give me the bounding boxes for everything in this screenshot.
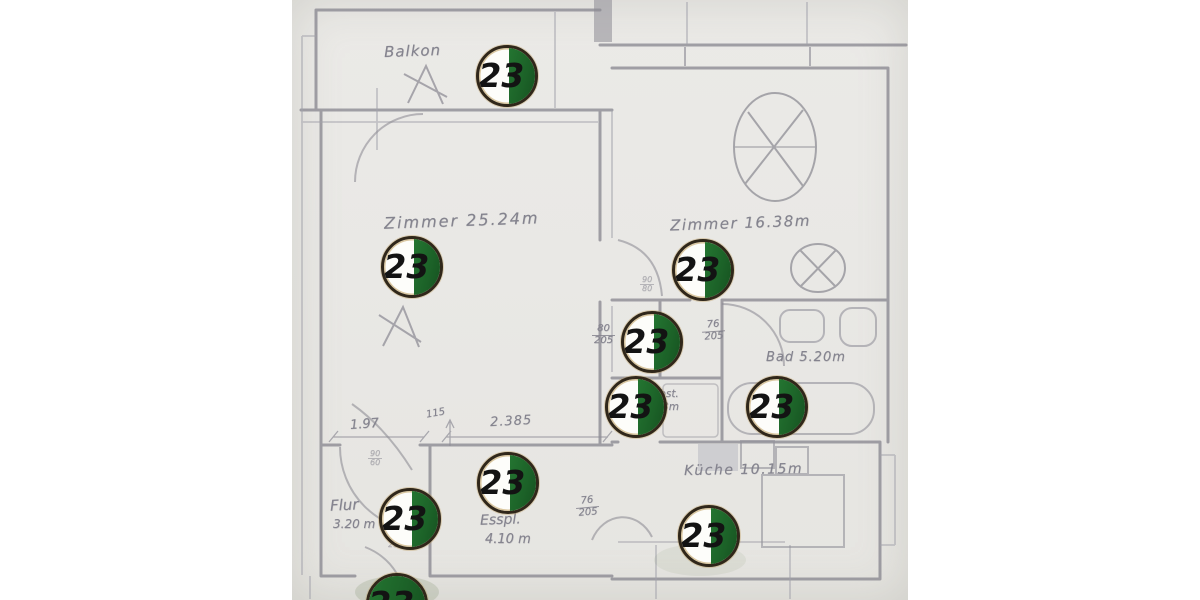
room-label-essplatz: Esspl.: [480, 511, 521, 528]
dim-tiny-corridor: 90 80: [640, 276, 654, 294]
dim-opening-esspl: 2.385: [490, 413, 533, 430]
map-marker[interactable]: 23: [672, 239, 734, 301]
marker-number: 23: [370, 579, 413, 600]
marker-number: 23: [385, 242, 428, 290]
room-area-essplatz: 4.10 m: [485, 532, 531, 547]
floorplan-screenshot: Balkon Zimmer 25.24m Zimmer 16.38m Bad 5…: [0, 0, 1200, 600]
map-marker[interactable]: 23: [746, 376, 808, 438]
marker-number: 23: [481, 458, 524, 506]
room-area-flur: 3.20 m: [333, 517, 375, 531]
wall-column: [594, 0, 612, 42]
marker-number: 23: [625, 317, 668, 365]
map-marker[interactable]: 23: [476, 45, 538, 107]
dim-door-kueche: 76 205: [575, 495, 600, 519]
dim-door-bad: 76 205: [701, 319, 726, 343]
floorplan-linework: [0, 0, 1200, 600]
marker-number: 23: [609, 382, 652, 430]
room-label-balkon: Balkon: [384, 41, 442, 61]
dim-opening-flur: 1.97: [350, 416, 380, 433]
map-marker[interactable]: 23: [621, 311, 683, 373]
dim-door-corridor-width: 80: [597, 324, 610, 335]
map-marker[interactable]: 23: [678, 505, 740, 567]
map-marker[interactable]: 23: [477, 452, 539, 514]
map-marker[interactable]: 23: [379, 488, 441, 550]
dim-door-kueche-height: 205: [576, 505, 600, 518]
dim-tiny-flur: 90 60: [368, 450, 382, 468]
dim-door-corridor-height: 205: [592, 335, 615, 347]
marker-number: 23: [676, 245, 719, 293]
dim-tiny-flur-height: 60: [368, 458, 382, 467]
marker-number: 23: [383, 494, 426, 542]
room-label-bad: Bad 5.20m: [766, 350, 846, 365]
room-label-kueche: Küche 10.15m: [684, 461, 803, 479]
marker-number: 23: [480, 51, 523, 99]
marker-number: 23: [750, 382, 793, 430]
map-marker[interactable]: 23: [381, 236, 443, 298]
marker-number: 23: [682, 511, 725, 559]
dim-door-bad-height: 205: [702, 330, 726, 343]
room-label-flur: Flur: [330, 495, 359, 514]
dim-door-corridor: 80 205: [592, 324, 615, 346]
dim-tiny-corridor-height: 80: [640, 284, 654, 293]
map-marker[interactable]: 23: [605, 376, 667, 438]
window-jambs: [685, 47, 810, 66]
map-marker[interactable]: 23: [366, 573, 428, 600]
